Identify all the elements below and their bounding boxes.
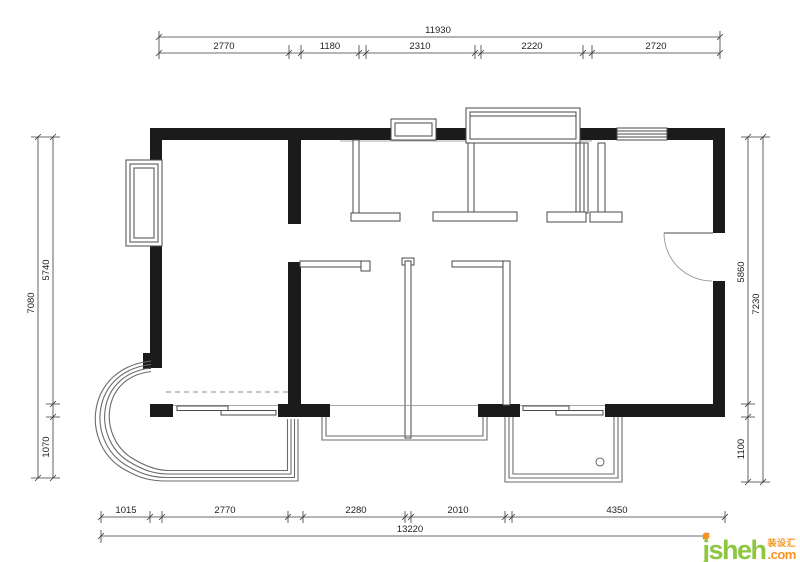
dim-label: 7080 — [26, 292, 37, 313]
dim-label: 5740 — [41, 259, 52, 280]
top-small-window-inner — [395, 123, 432, 136]
dim-label: 5860 — [736, 261, 747, 282]
bottom-wall-seg2 — [278, 404, 330, 417]
watermark-brand: jsheh — [702, 539, 765, 561]
dim-label: 1100 — [736, 439, 747, 459]
bottom-wall-seg3 — [478, 404, 520, 417]
watermark-suffix: .com — [767, 548, 796, 561]
partition-stub-d — [598, 143, 605, 212]
duct-column — [576, 143, 588, 213]
top-wall-mid1 — [433, 128, 468, 140]
interior-wall-upper — [288, 140, 301, 224]
partition-stub-a — [353, 140, 359, 213]
dim-label: 2720 — [645, 41, 666, 52]
dim-label: 1180 — [320, 41, 340, 52]
floor-plan-drawing: 11930 2770 1180 2310 2220 2720 1015 2770… — [0, 0, 800, 562]
partition-h1-post — [361, 261, 370, 271]
floor-plan-page: 11930 2770 1180 2310 2220 2720 1015 2770… — [0, 0, 800, 562]
dim-label: 13220 — [397, 524, 423, 535]
dim-label: 11930 — [425, 25, 451, 36]
partition-cap-d — [590, 212, 622, 222]
dimension-top: 11930 2770 1180 2310 2220 2720 — [156, 25, 723, 59]
sliding-window-panel — [523, 406, 569, 411]
dim-label: 2310 — [409, 41, 430, 52]
dim-label: 2770 — [213, 41, 234, 52]
dim-label: 2010 — [447, 505, 468, 516]
partition-cap-c — [547, 212, 586, 222]
partition-h2 — [452, 261, 509, 267]
top-wall-left — [150, 128, 397, 140]
interior-wall-lower — [288, 262, 301, 404]
dim-label: 1015 — [115, 505, 136, 516]
partition-walls — [300, 140, 622, 438]
partition-v3 — [405, 261, 411, 438]
right-wall-upper — [713, 128, 725, 233]
partition-cap-a — [351, 213, 400, 221]
dim-label: 1070 — [41, 436, 52, 457]
dimension-right: 5860 1100 7230 — [736, 134, 770, 485]
partition-stub-b — [468, 143, 474, 212]
right-balcony-mid — [509, 417, 618, 478]
top-wall-mid2 — [578, 128, 617, 140]
interior-walls — [288, 140, 301, 404]
watermark-right-column: 装设汇 .com — [767, 539, 796, 561]
exterior-walls — [143, 128, 725, 417]
dim-label: 7230 — [751, 293, 762, 314]
entry-door — [664, 233, 713, 281]
floor-drain — [596, 458, 604, 466]
right-balcony — [505, 417, 622, 482]
door-swing-arc — [664, 233, 712, 281]
dim-label: 2280 — [345, 505, 366, 516]
dimension-left: 5740 1070 7080 — [26, 134, 60, 481]
bottom-wall-seg4 — [605, 404, 725, 417]
left-window-inner — [134, 168, 154, 238]
partition-v4 — [503, 261, 510, 405]
curved-balcony-line — [100, 365, 295, 478]
partition-cap-b — [433, 212, 517, 221]
left-wall-upper — [150, 128, 162, 160]
dim-label: 4350 — [606, 505, 627, 516]
sliding-doors — [166, 392, 605, 415]
watermark-logo: jsheh 装设汇 .com — [702, 539, 796, 561]
left-wall-lower — [150, 246, 162, 368]
curved-balcony — [95, 361, 298, 481]
sliding-door-panel — [221, 411, 276, 416]
dimension-bottom: 1015 2770 2280 2010 4350 13220 — [98, 505, 728, 543]
curved-balcony-line — [109, 372, 287, 471]
sliding-window-panel — [556, 411, 603, 416]
partition-h1 — [300, 261, 366, 267]
right-wall-lower — [713, 281, 725, 417]
sliding-door-panel — [177, 406, 228, 411]
bottom-wall-seg1 — [150, 404, 173, 417]
curved-balcony-line — [95, 361, 298, 481]
dim-label: 2220 — [521, 41, 542, 52]
right-balcony-outline — [505, 417, 622, 482]
dim-label: 2770 — [214, 505, 235, 516]
